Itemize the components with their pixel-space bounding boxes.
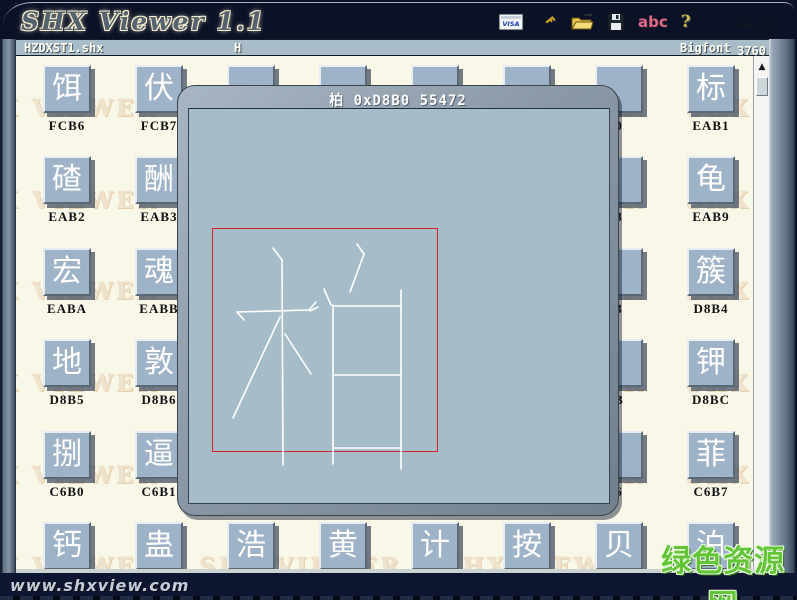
char-tile-EAB9[interactable]: 龟 [687,156,735,204]
tile-character: 龟 [689,163,733,197]
tile-character: 蛊 [137,529,181,563]
tile-code-label: EABA [27,301,107,317]
char-tile-EABA[interactable]: 宏 [43,248,91,296]
glyph-vector-drawing [189,109,609,503]
key-icon-svg [537,12,557,32]
open-folder-icon[interactable] [570,12,594,32]
save-icon-svg [607,13,625,31]
help-icon[interactable]: ? [681,12,691,32]
tile-character: 簇 [689,255,733,289]
scroll-up-arrow[interactable]: ▲ [755,62,769,72]
tile-character: 宏 [45,255,89,289]
glyph-preview-popup[interactable]: 柏 0xD8B0 55472 [177,85,619,516]
char-tile-FCB7[interactable]: 伏 [135,65,183,113]
char-tile[interactable]: 贝 [595,522,643,569]
scrollbar-thumb[interactable] [756,77,768,96]
tile-code-label: D8B4 [671,301,751,317]
app-title: SHX Viewer 1.1 [21,7,266,36]
status-center-label: H [234,41,241,55]
char-tile-D8B5[interactable]: 地 [43,339,91,387]
tile-character: 逼 [137,438,181,472]
minimize-button[interactable] [740,23,755,27]
char-tile-EAB2[interactable]: 碴 [43,156,91,204]
tile-character: 碴 [45,163,89,197]
visa-card-icon-svg: VISA [498,13,524,31]
char-tile-EABB[interactable]: 魂 [135,248,183,296]
char-tile-D8B4[interactable]: 簇 [687,248,735,296]
tile-character: 钾 [689,346,733,380]
window-left-border [0,39,16,573]
vertical-scrollbar[interactable]: ▲ ▼ [753,56,769,569]
char-tile-EAB1[interactable]: 标 [687,65,735,113]
popup-title: 柏 0xD8B0 55472 [178,90,618,110]
tile-character: 菲 [689,438,733,472]
tile-character: 酬 [137,163,181,197]
tile-code-label: D8BC [671,392,751,408]
save-icon[interactable] [607,13,625,31]
char-tile[interactable]: 计 [411,522,459,569]
tile-character: 贝 [597,529,641,563]
tile-code-label: EAB1 [671,118,751,134]
loaded-filename: HZDXST1.shx [24,41,103,55]
status-bar: HZDXST1.shx H Bigfont 3760 [16,39,770,56]
tile-character: 伏 [137,72,181,106]
tile-character: 饵 [45,72,89,106]
close-icon [759,13,777,31]
svg-text:VISA: VISA [502,20,519,28]
tile-code-label: C6B0 [27,484,107,500]
char-tile-D8BC[interactable]: 钾 [687,339,735,387]
char-tile[interactable]: 蛊 [135,522,183,569]
font-type-label: Bigfont [680,41,731,55]
tile-code-label: D8B5 [27,392,107,408]
char-tile-EAB3[interactable]: 酬 [135,156,183,204]
char-tile-C6B1[interactable]: 逼 [135,431,183,479]
char-tile[interactable]: 浩 [227,522,275,569]
abc-button[interactable]: abc [638,13,668,31]
visa-card-icon[interactable]: VISA [498,13,524,31]
char-tile-D8B6[interactable]: 敦 [135,339,183,387]
tile-code-label: EAB2 [27,209,107,225]
popup-canvas [188,108,610,504]
downloader-watermark: 绿色资源网 www.downcc.com [648,536,797,600]
tile-character: 魂 [137,255,181,289]
tile-character: 黄 [321,529,365,563]
tile-character: 地 [45,346,89,380]
char-tile[interactable]: 钙 [43,522,91,569]
tile-character: 钙 [45,529,89,563]
tile-character: 浩 [229,529,273,563]
char-tile[interactable]: 黄 [319,522,367,569]
char-tile-C6B7[interactable]: 菲 [687,431,735,479]
close-button[interactable] [759,13,777,31]
char-tile[interactable]: 按 [503,522,551,569]
tile-code-label: C6B7 [671,484,751,500]
tile-code-label: FCB6 [27,118,107,134]
downloader-site-name: 绿色资源网 [648,536,797,600]
char-tile-FCB6[interactable]: 饵 [43,65,91,113]
tile-character: 标 [689,72,733,106]
open-folder-icon-svg [570,12,594,32]
shx-viewer-window: SHX Viewer 1.1 VISA [0,0,797,600]
tile-character: 捌 [45,438,89,472]
tile-character: 计 [413,529,457,563]
key-icon[interactable] [537,12,557,32]
title-bar[interactable]: SHX Viewer 1.1 VISA [3,2,794,39]
tile-code-label: EAB9 [671,209,751,225]
tile-character: 敦 [137,346,181,380]
window-right-border [769,39,797,573]
tile-character: 按 [505,529,549,563]
char-tile-C6B0[interactable]: 捌 [43,431,91,479]
website-label: www.shxview.com [10,576,189,595]
